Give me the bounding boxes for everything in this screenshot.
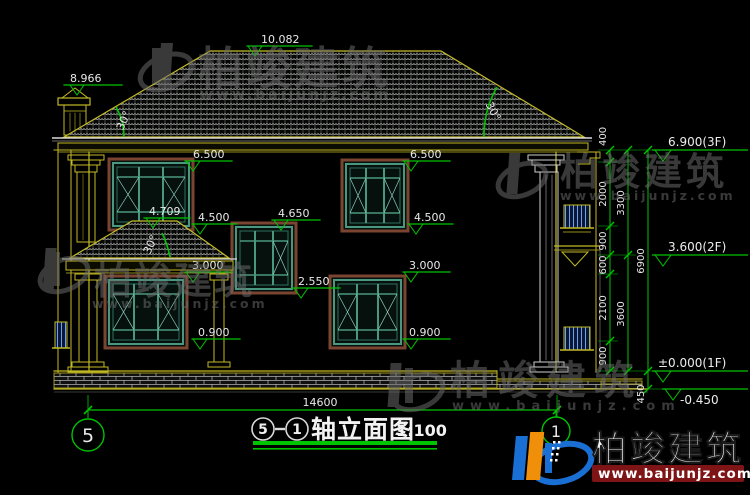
dim-label: 400 — [598, 127, 609, 146]
dim-label: 900 — [598, 231, 609, 250]
window-1f-right — [330, 276, 405, 348]
dim-label: 6900 — [636, 248, 647, 273]
floor-label: 6.900(3F) — [668, 135, 726, 149]
axis-bubble-right: 1 — [542, 410, 570, 445]
left-column-upper — [68, 155, 104, 242]
level-label: 6.500 — [410, 148, 442, 161]
watermark-url: www.baijunjz.com — [92, 296, 268, 311]
title-scale: 1:100 — [396, 421, 447, 440]
level-flag-2f-right-bottom: 4.500 — [408, 211, 453, 234]
level-flag-1f-right-sill: 0.900 — [403, 326, 450, 349]
dim-label-width: 14600 — [303, 396, 338, 409]
level-flag-1f-right-top: 3.000 — [403, 259, 450, 282]
side-window-right-upper — [560, 205, 594, 232]
floor-flag-2f: 3.600(2F) — [652, 240, 748, 266]
title-axis-start: 5 — [258, 422, 268, 438]
level-label: 8.966 — [70, 72, 102, 85]
watermark-url: www.baijunjz.com — [560, 188, 736, 203]
axis-bubble-left: 5 — [72, 410, 104, 451]
floor-label: 3.600(2F) — [668, 240, 726, 254]
watermark-right: 柏竣建筑 www.baijunjz.com — [493, 150, 735, 203]
level-label: 4.500 — [414, 211, 446, 224]
level-label: 3.000 — [409, 259, 441, 272]
floor-flag-1f: ±0.000(1F) — [652, 356, 748, 382]
axis-number: 5 — [82, 425, 94, 447]
side-window-right-lower — [560, 327, 594, 350]
level-flag-1f-left-sill: 0.900 — [192, 326, 240, 349]
watermark-url: www.baijunjz.com — [200, 87, 391, 103]
site-logo-url: www.baijunjz.com — [598, 466, 750, 482]
floor-label: ±0.000(1F) — [658, 356, 726, 370]
level-label: 4.709 — [149, 205, 181, 218]
title-underline-thick — [253, 441, 437, 445]
drawing-title: 5 1 轴立面图 1:100 — [252, 415, 447, 450]
window-2f-right — [342, 160, 408, 231]
floor-label: -0.450 — [680, 393, 719, 407]
dim-label: 3600 — [616, 301, 627, 326]
right-side-canopy — [554, 246, 600, 266]
dim-label: 2100 — [598, 295, 609, 320]
watermark-brand: 柏竣建筑 — [450, 358, 642, 404]
level-flag-2f-left-bottom: 4.500 — [192, 211, 237, 234]
level-label: 6.500 — [193, 148, 225, 161]
elevation-canvas: 30° 30° 30° 10.082 8.966 6.500 — [0, 0, 750, 495]
watermark-logo-icon — [493, 153, 551, 203]
cad-elevation-drawing: 30° 30° 30° 10.082 8.966 6.500 — [0, 0, 750, 495]
level-label: 0.900 — [409, 326, 441, 339]
side-window-left — [52, 322, 70, 348]
level-flag-2f-right-top: 6.500 — [403, 148, 450, 171]
level-flag-chimney: 8.966 — [64, 72, 122, 95]
watermark-url: www.baijunjz.com — [452, 399, 681, 414]
title-axis-end: 1 — [292, 422, 302, 438]
level-label: 0.900 — [198, 326, 230, 339]
window-2f-left — [109, 159, 193, 230]
title-underline-thin — [253, 448, 437, 450]
site-logo: 柏竣建筑 www.baijunjz.com — [512, 429, 750, 489]
dim-label: 600 — [598, 255, 609, 274]
level-label: 4.650 — [278, 207, 310, 220]
axis-number: 1 — [551, 422, 561, 441]
level-label: 4.500 — [198, 211, 230, 224]
level-label: 2.550 — [298, 275, 330, 288]
site-logo-brand: 柏竣建筑 — [592, 429, 744, 470]
